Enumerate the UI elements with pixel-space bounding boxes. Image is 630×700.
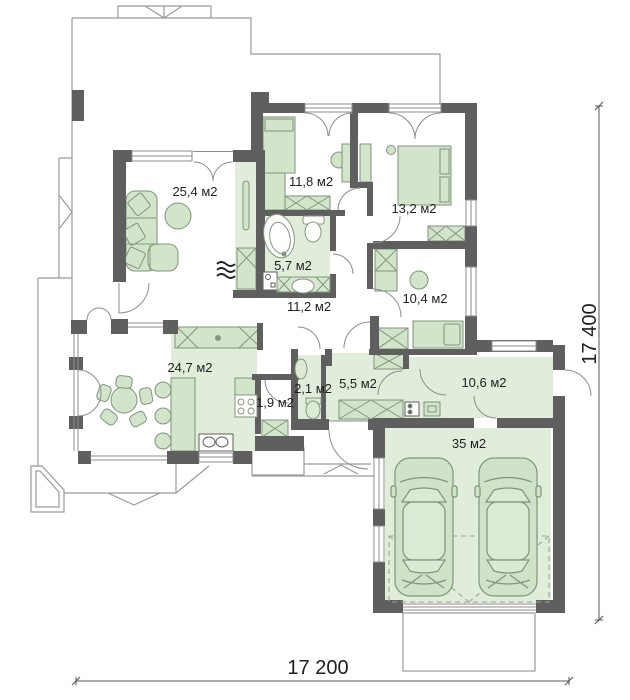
svg-text:13,2 м2: 13,2 м2	[391, 201, 436, 216]
svg-text:10,6 м2: 10,6 м2	[461, 375, 506, 390]
svg-text:17 400: 17 400	[579, 303, 601, 364]
svg-text:5,7 м2: 5,7 м2	[274, 258, 312, 273]
svg-text:25,4 м2: 25,4 м2	[172, 184, 217, 199]
svg-text:10,4 м2: 10,4 м2	[402, 291, 447, 306]
svg-text:24,7 м2: 24,7 м2	[167, 360, 212, 375]
svg-text:2,1 м2: 2,1 м2	[294, 381, 332, 396]
svg-text:35 м2: 35 м2	[452, 436, 486, 451]
svg-text:11,8 м2: 11,8 м2	[289, 174, 333, 189]
svg-text:11,2 м2: 11,2 м2	[287, 299, 331, 314]
svg-text:1,9 м2: 1,9 м2	[256, 395, 294, 410]
svg-text:17 200: 17 200	[287, 657, 348, 679]
svg-text:5,5 м2: 5,5 м2	[339, 376, 377, 391]
